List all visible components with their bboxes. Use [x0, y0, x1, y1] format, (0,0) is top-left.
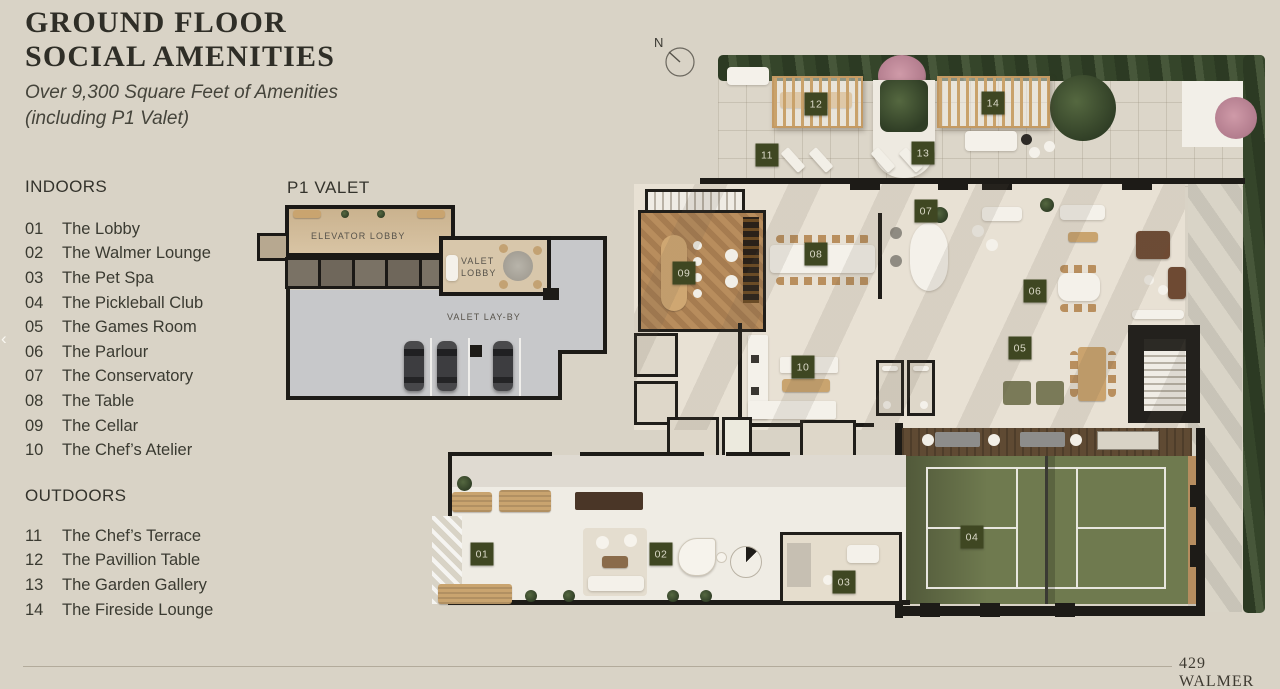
- valet-desk: [446, 255, 458, 281]
- valet-service-rooms: [285, 257, 455, 289]
- legend-item-number: 06: [25, 343, 62, 362]
- cellar-armchair: [725, 275, 738, 288]
- leather-sofa: [1136, 231, 1170, 259]
- conservatory-sofa: [910, 223, 948, 291]
- indoors-heading: INDOORS: [25, 177, 107, 197]
- pet-spa-room: [780, 532, 902, 604]
- page-subtitle-line2: (including P1 Valet): [25, 106, 338, 132]
- project-name: 429 WALMER: [1179, 655, 1280, 689]
- valet-chair: [533, 280, 542, 289]
- valet-lobby-label: VALET LOBBY: [461, 255, 503, 279]
- p1-valet-plan: ELEVATOR LOBBY VALET LOBBY: [255, 200, 615, 408]
- atelier-appliance: [751, 387, 759, 395]
- deck-bench: [935, 432, 980, 447]
- court-pillar-east: [1190, 545, 1205, 567]
- valet-wall: [603, 236, 607, 354]
- legend-item-label: The Games Room: [62, 318, 197, 337]
- toilet: [883, 401, 891, 409]
- garden-planter-greens: [880, 80, 928, 132]
- lobby-wall-north: [726, 452, 790, 456]
- outdoors-heading: OUTDOORS: [25, 486, 126, 506]
- parking-line: [430, 338, 432, 396]
- elevator-lobby-plant: [341, 210, 349, 218]
- pet-wash-tub: [847, 545, 879, 563]
- legend-item: 07The Conservatory: [25, 365, 211, 390]
- valet-chair: [499, 244, 508, 253]
- deck-planter: [1070, 434, 1082, 446]
- footer-rule: [23, 666, 1172, 667]
- wine-display: [743, 217, 759, 303]
- cellar-room: [638, 210, 766, 332]
- wall-block: [982, 182, 1012, 190]
- legend-item-number: 13: [25, 576, 62, 595]
- court-pillar: [980, 603, 1000, 617]
- valet-chair: [533, 246, 542, 255]
- stair-landing: [1144, 339, 1186, 351]
- court-deck: [902, 428, 1192, 456]
- service-room: [288, 260, 318, 286]
- parlour-marble-table: [1058, 273, 1100, 301]
- legend-item: 13The Garden Gallery: [25, 573, 213, 598]
- valet-layby-floor: [290, 290, 558, 396]
- terrace-tree: [1050, 75, 1116, 141]
- legend-item-number: 08: [25, 392, 62, 411]
- legend-item-label: The Cellar: [62, 417, 138, 436]
- game-table: [1036, 381, 1064, 405]
- court-pillar: [920, 603, 940, 617]
- page-subtitle-line1: Over 9,300 Square Feet of Amenities: [25, 80, 338, 106]
- parlour-sofa: [1060, 205, 1105, 220]
- pet-spa-stool: [823, 575, 833, 585]
- fireside-chair: [1044, 141, 1055, 152]
- elevator-lobby-room: ELEVATOR LOBBY: [285, 205, 455, 257]
- cellar-chair: [693, 289, 702, 298]
- deck-planter: [988, 434, 1000, 446]
- lobby-wing: [430, 420, 910, 620]
- page: GROUND FLOOR SOCIAL AMENITIES Over 9,300…: [0, 0, 1280, 689]
- car: [437, 341, 457, 391]
- parlour-side-chair: [1158, 285, 1168, 295]
- dining-chairs-row: [776, 235, 870, 243]
- court-nvz-line: [1016, 467, 1018, 589]
- cellar-chair: [693, 257, 702, 266]
- parlour-table-chairs: [1060, 265, 1098, 273]
- indoors-list: 01The Lobby02The Walmer Lounge03The Pet …: [25, 217, 211, 463]
- deck-planter: [922, 434, 934, 446]
- pickleball-court: [902, 456, 1188, 604]
- legend-item-label: The Fireside Lounge: [62, 601, 213, 620]
- deck-bench-2: [1020, 432, 1065, 447]
- outdoor-bench: [438, 584, 512, 604]
- cellar-table: [661, 235, 687, 311]
- wall-block: [850, 182, 880, 190]
- legend-item: 10The Chef’s Atelier: [25, 438, 211, 463]
- legend-item: 08The Table: [25, 389, 211, 414]
- legend-item-label: The Lobby: [62, 220, 140, 239]
- legend-item: 12The Pavillion Table: [25, 549, 213, 574]
- page-title-line2: SOCIAL AMENITIES: [25, 40, 335, 74]
- lobby-bench: [452, 492, 492, 512]
- legend-item-label: The Parlour: [62, 343, 148, 362]
- parking-line: [519, 338, 521, 396]
- washroom-counter: [913, 366, 929, 371]
- legend-item: 09The Cellar: [25, 414, 211, 439]
- valet-wall: [558, 350, 562, 400]
- legend-item: 01The Lobby: [25, 217, 211, 242]
- parlour-credenza: [1132, 310, 1184, 319]
- page-subtitle: Over 9,300 Square Feet of Amenities (inc…: [25, 80, 338, 132]
- service-room: [355, 260, 385, 286]
- conservatory-chair: [890, 227, 902, 239]
- legend-item-label: The Garden Gallery: [62, 576, 207, 595]
- deck-counter: [1097, 431, 1159, 450]
- cellar-chair: [693, 273, 702, 282]
- legend-item-number: 07: [25, 367, 62, 386]
- lobby-plant: [457, 476, 472, 491]
- conservatory-chair: [890, 255, 902, 267]
- atelier-dining-table: [782, 379, 830, 392]
- hedge-right: [1243, 55, 1265, 613]
- atelier-appliance: [751, 355, 759, 363]
- legend-item-number: 05: [25, 318, 62, 337]
- washroom-2: [907, 360, 935, 416]
- games-long-table: [1078, 347, 1106, 401]
- legend-item-number: 02: [25, 244, 62, 263]
- court-pillar: [1055, 603, 1075, 617]
- court-net: [1045, 456, 1048, 604]
- legend-item-label: The Conservatory: [62, 367, 193, 386]
- entry-marble-band: [450, 455, 906, 487]
- leather-sofa-2: [1168, 267, 1186, 299]
- valet-chair: [499, 280, 508, 289]
- toilet: [920, 401, 928, 409]
- legend-item: 04The Pickleball Club: [25, 291, 211, 316]
- valet-wall-stub: [543, 288, 559, 300]
- piano-stool: [716, 552, 727, 563]
- lobby-bench-2: [499, 490, 551, 512]
- washroom-counter: [882, 366, 898, 371]
- legend-item-label: The Chef’s Atelier: [62, 441, 192, 460]
- court-pillar-east: [1190, 485, 1205, 507]
- game-table: [1003, 381, 1031, 405]
- car: [404, 341, 424, 391]
- compass-north-label: N: [654, 35, 663, 50]
- lounge-chair: [624, 534, 637, 547]
- atelier-wall: [738, 323, 742, 427]
- legend-item-number: 10: [25, 441, 62, 460]
- flowering-tree: [1215, 97, 1257, 139]
- games-table-chairs: [1108, 351, 1116, 397]
- cellar-chair: [693, 241, 702, 250]
- games-table-chairs: [1070, 351, 1078, 397]
- conservatory-screen-wall: [878, 213, 882, 299]
- cellar-armchair: [725, 249, 738, 262]
- pet-spa-counter: [787, 543, 811, 587]
- legend-item-number: 09: [25, 417, 62, 436]
- spiral-stair: [730, 546, 762, 578]
- legend-item-number: 04: [25, 294, 62, 313]
- parlour-side-chair: [1144, 275, 1154, 285]
- lobby-wall-north: [448, 452, 552, 456]
- legend-item-label: The Pavillion Table: [62, 551, 200, 570]
- court-edge-wood: [1188, 456, 1196, 604]
- stairwell-east: [1128, 325, 1200, 423]
- legend-item: 05The Games Room: [25, 315, 211, 340]
- parking-line: [468, 338, 470, 396]
- legend-item: 14The Fireside Lounge: [25, 598, 213, 623]
- legend-item-label: The Pet Spa: [62, 269, 154, 288]
- parlour-coffee-table: [1068, 232, 1098, 242]
- legend-item-label: The Chef’s Terrace: [62, 527, 201, 546]
- p1-valet-heading: P1 VALET: [287, 178, 370, 198]
- terrace-bench: [727, 67, 769, 85]
- lobby-media-console: [575, 492, 643, 510]
- legend-item-label: The Table: [62, 392, 134, 411]
- legend-item-number: 12: [25, 551, 62, 570]
- service-room: [388, 260, 418, 286]
- parlour-chaise: [982, 207, 1022, 221]
- pergola-left: [772, 76, 863, 128]
- planter: [525, 590, 537, 602]
- court-center-line: [926, 527, 1016, 529]
- lobby-wall-north: [580, 452, 704, 456]
- court-center-line: [1078, 527, 1166, 529]
- lounge-chair: [596, 536, 609, 549]
- valet-wall: [286, 396, 562, 400]
- legend-item-number: 14: [25, 601, 62, 620]
- legend-item-label: The Pickleball Club: [62, 294, 203, 313]
- valet-wall: [286, 286, 290, 400]
- lounge-coffee-table: [602, 556, 628, 568]
- legend-item: 11The Chef’s Terrace: [25, 524, 213, 549]
- washroom: [876, 360, 904, 416]
- legend-item: 03The Pet Spa: [25, 266, 211, 291]
- legend-item: 06The Parlour: [25, 340, 211, 365]
- service-room: [321, 260, 351, 286]
- valet-layby-label: VALET LAY-BY: [447, 312, 521, 322]
- fire-bowl: [1021, 134, 1032, 145]
- planter: [667, 590, 679, 602]
- legend-item-number: 03: [25, 269, 62, 288]
- atelier-counter-2: [748, 401, 836, 419]
- court-wall-south: [895, 606, 1205, 616]
- parlour-chair: [986, 239, 998, 251]
- page-title-line1: GROUND FLOOR: [25, 6, 335, 40]
- parlour-plant: [1040, 198, 1054, 212]
- pergola-right: [937, 76, 1050, 128]
- valet-lobby-room: VALET LOBBY: [439, 236, 551, 296]
- conservatory-plant: [932, 207, 948, 223]
- dining-chairs-row: [776, 277, 870, 285]
- car: [493, 341, 513, 391]
- elevator-lobby-console-2: [417, 210, 445, 218]
- carousel-prev-icon[interactable]: ‹: [1, 329, 7, 349]
- elevator-lobby-console: [293, 210, 321, 218]
- grand-piano: [678, 538, 716, 576]
- legend-item-number: 01: [25, 220, 62, 239]
- outdoors-list: 11The Chef’s Terrace12The Pavillion Tabl…: [25, 524, 213, 622]
- wall-block: [1122, 182, 1152, 190]
- elevator-lobby-plant-2: [377, 210, 385, 218]
- legend-item: 02The Walmer Lounge: [25, 242, 211, 267]
- fireside-chair: [1029, 147, 1040, 158]
- legend-item-label: The Walmer Lounge: [62, 244, 211, 263]
- page-title: GROUND FLOOR SOCIAL AMENITIES: [25, 6, 335, 74]
- valet-wall: [558, 350, 607, 354]
- west-room: [634, 333, 678, 377]
- lounge-sofa: [588, 576, 644, 591]
- fireside-sofa: [965, 131, 1017, 151]
- legend-item-number: 11: [25, 527, 62, 546]
- parlour-chair: [972, 225, 984, 237]
- planter: [700, 590, 712, 602]
- valet-wall: [551, 236, 607, 240]
- atelier-island: [780, 357, 838, 373]
- elevator-lobby-label: ELEVATOR LOBBY: [311, 231, 405, 241]
- valet-pillar: [470, 345, 482, 357]
- planter: [563, 590, 575, 602]
- wall-block: [938, 182, 968, 190]
- dining-table: [770, 245, 875, 273]
- parlour-table-chairs: [1060, 304, 1098, 312]
- court-wall-east: [1196, 428, 1205, 616]
- valet-lobby-rug: [503, 251, 533, 281]
